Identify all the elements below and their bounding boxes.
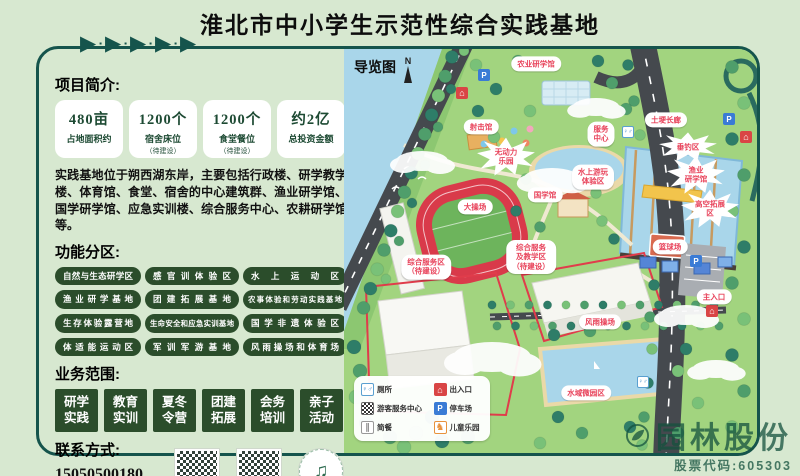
wechat-work-qr	[175, 449, 219, 476]
legend-item: ∥简餐	[361, 421, 426, 434]
legend-label: 简餐	[377, 422, 392, 433]
legend-label: 厕所	[377, 384, 392, 395]
map-label: 综合服务 及教学区 （待建设）	[506, 240, 556, 274]
arrow-dot-icon: ▪	[124, 40, 127, 48]
phone-list: 1505050018015215612863	[55, 465, 171, 476]
watermark: 园林股份 股票代码:605303	[625, 413, 792, 474]
business-tile: 会务 培训	[251, 389, 294, 432]
map-label: 主入口	[697, 289, 732, 304]
qr-item: 公众号	[233, 449, 285, 476]
poster-page: 淮北市中小学生示范性综合实践基地 ▶▪▶▪▶▪▶▪▶ 项目简介: 480亩占地面…	[0, 0, 800, 476]
map-legend: ♀♂厕所⌂出入口游客服务中心P停车场∥简餐♞儿童乐园	[354, 376, 490, 441]
zone-pill: 水上运动区	[243, 267, 347, 285]
map-label: 农业研学馆	[511, 56, 561, 71]
zone-pill-grid: 自然与生态研学区感官训体验区水上运动区渔业研学基地团建拓展基地农事体验和劳动实践…	[55, 267, 347, 356]
intro-description: 实践基地位于朔西湖东岸，主要包括行政楼、研学教学楼、体育馆、食堂、宿舍的中心建筑…	[55, 167, 347, 234]
phone-number: 15050500180	[55, 465, 171, 476]
business-tiles: 研学 实践教育 实训夏冬 令营团建 拓展会务 培训亲子 活动	[55, 389, 347, 432]
map-label: 篮球场	[653, 239, 688, 254]
map-label: 大操场	[458, 199, 493, 214]
legend-item: ♞儿童乐园	[434, 421, 484, 434]
arrow-icon: ▶	[80, 33, 96, 54]
map-label: 风雨操场	[579, 314, 621, 329]
arrow-icon: ▶	[130, 33, 146, 54]
parking-icon: P	[434, 402, 447, 415]
zone-pill: 风雨操场和体育场	[243, 338, 347, 356]
map-label: 土埂长廊	[645, 112, 687, 127]
watermark-stock-code: 股票代码:605303	[625, 455, 792, 474]
zone-pill: 感官训体验区	[145, 267, 239, 285]
business-tile: 研学 实践	[55, 389, 98, 432]
arrow-dot-icon: ▪	[174, 40, 177, 48]
info-column: 项目简介: 480亩占地面积约1200个宿舍床位（待建设）1200个食堂餐位（待…	[55, 67, 347, 476]
map-label: 国学馆	[528, 187, 563, 202]
visitor-center-icon	[361, 402, 374, 415]
entrance-icon: ⌂	[706, 305, 718, 317]
business-tile: 夏冬 令营	[153, 389, 196, 432]
meal-icon: ∥	[361, 421, 374, 434]
legend-item: P停车场	[434, 402, 484, 415]
business-tile: 团建 拓展	[202, 389, 245, 432]
stat-note: （待建设）	[129, 146, 197, 156]
entrance-icon: ⌂	[434, 383, 447, 396]
legend-label: 游客服务中心	[377, 403, 422, 414]
zone-pill: 国学非遗体验区	[243, 314, 347, 333]
map-label: 服务 中心	[588, 122, 615, 147]
map-label: 水域微园区	[561, 385, 611, 400]
stat-card: 1200个食堂餐位（待建设）	[203, 100, 271, 158]
stat-note: （待建设）	[203, 146, 271, 156]
zone-pill: 生存体验露营地	[55, 314, 141, 333]
arrow-icon: ▶	[155, 33, 171, 54]
legend-label: 出入口	[450, 384, 473, 395]
stat-value: 480亩	[55, 108, 123, 129]
watermark-company: 园林股份	[656, 413, 792, 457]
stat-label: 食堂餐位	[203, 132, 271, 145]
map-title: 导览图	[354, 57, 396, 77]
zones-header: 功能分区:	[55, 241, 347, 262]
zone-pill: 军训军游基地	[145, 338, 239, 356]
toilet-icon: ♀♂	[622, 126, 634, 138]
stat-card: 约2亿总投资金额	[277, 100, 345, 158]
arrow-icon: ▶	[105, 33, 121, 54]
map-label: 综合服务区 （待建设）	[401, 255, 451, 280]
zone-pill: 农事体验和劳动实践基地	[243, 290, 347, 309]
business-header: 业务范围:	[55, 363, 347, 384]
business-tile: 教育 实训	[104, 389, 147, 432]
legend-item: ⌂出入口	[434, 383, 484, 396]
toilet-icon: ♀♂	[637, 376, 649, 388]
stat-label: 占地面积约	[55, 132, 123, 145]
compass-icon: N	[404, 57, 412, 83]
parking-icon: P	[723, 113, 735, 125]
stat-value: 约2亿	[277, 108, 345, 129]
stat-label: 宿舍床位	[129, 132, 197, 145]
zone-pill: 体适能运动区	[55, 338, 141, 356]
zone-pill: 团建拓展基地	[145, 290, 239, 309]
official-account-qr	[237, 449, 281, 476]
zone-pill: 自然与生态研学区	[55, 267, 141, 285]
business-tile: 亲子 活动	[300, 389, 343, 432]
arrow-dot-icon: ▪	[99, 40, 102, 48]
douyin-logo: ♫	[299, 449, 343, 476]
arrow-icon: ▶	[180, 33, 196, 54]
arrow-dot-icon: ▪	[149, 40, 152, 48]
legend-label: 儿童乐园	[450, 422, 480, 433]
intro-header: 项目简介:	[55, 74, 347, 95]
map-header: 导览图 N	[354, 57, 412, 83]
map-label: 射击馆	[464, 119, 499, 134]
contact-section: 1505050018015215612863 企业微信公众号♫抖音	[55, 465, 347, 476]
map-label: 水上游玩 体验区	[572, 165, 614, 190]
legend-label: 停车场	[450, 403, 473, 414]
stat-value: 1200个	[129, 108, 197, 129]
main-panel: 项目简介: 480亩占地面积约1200个宿舍床位（待建设）1200个食堂餐位（待…	[36, 46, 760, 456]
guide-map: 导览图 N 农业研学馆射击馆无动力 乐园服务 中心土埂长廊垂钓区水上游玩 体验区…	[344, 49, 757, 453]
stat-label: 总投资金额	[277, 132, 345, 145]
toilet-icon: ♀♂	[361, 383, 374, 396]
parking-icon: P	[478, 69, 490, 81]
entrance-icon: ⌂	[740, 131, 752, 143]
qr-item: ♫抖音	[295, 449, 347, 476]
zone-pill: 渔业研学基地	[55, 290, 141, 309]
stat-cards: 480亩占地面积约1200个宿舍床位（待建设）1200个食堂餐位（待建设）约2亿…	[55, 100, 347, 158]
entrance-icon: ⌂	[456, 87, 468, 99]
stat-card: 480亩占地面积约	[55, 100, 123, 158]
qr-item: 企业微信	[171, 449, 223, 476]
arrow-decoration: ▶▪▶▪▶▪▶▪▶	[80, 33, 196, 54]
stat-card: 1200个宿舍床位（待建设）	[129, 100, 197, 158]
zone-pill: 生命安全和应急实训基地	[145, 314, 239, 333]
playground-icon: ♞	[434, 421, 447, 434]
qr-code-row: 企业微信公众号♫抖音	[171, 449, 347, 476]
parking-icon: P	[690, 255, 702, 267]
legend-item: ♀♂厕所	[361, 383, 426, 396]
stat-value: 1200个	[203, 108, 271, 129]
leaf-logo-icon	[625, 423, 650, 448]
legend-item: 游客服务中心	[361, 402, 426, 415]
